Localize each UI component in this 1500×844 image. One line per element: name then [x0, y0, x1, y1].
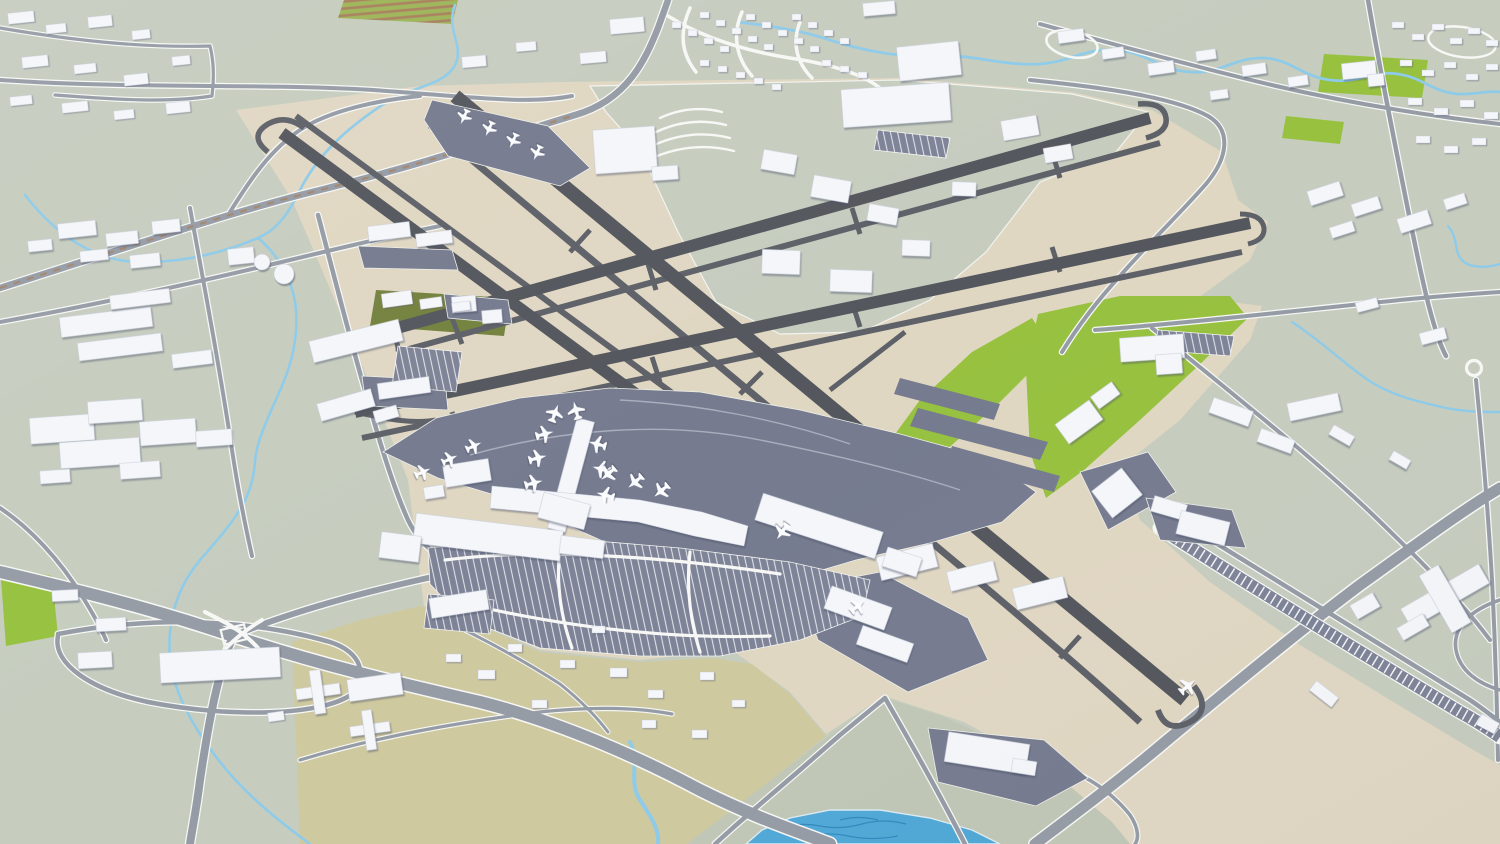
airport-3d-map	[0, 0, 1500, 844]
apron-west-1	[358, 246, 458, 270]
airport-map-canvas	[0, 0, 1500, 844]
